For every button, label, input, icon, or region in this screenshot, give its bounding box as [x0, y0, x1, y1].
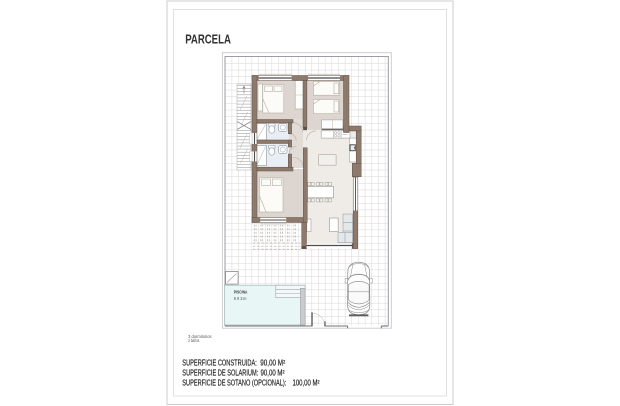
svg-text:SUPERFICIE DE SOLARIUM:: SUPERFICIE DE SOLARIUM: — [182, 369, 258, 378]
svg-text:SUPERFICIE CONSTRUIDA:: SUPERFICIE CONSTRUIDA: — [182, 358, 256, 367]
svg-text:100,00 M²: 100,00 M² — [293, 379, 320, 388]
svg-text:90,00 M²: 90,00 M² — [261, 369, 285, 378]
svg-text:PARCELA: PARCELA — [185, 31, 231, 46]
svg-text:90,00 M²: 90,00 M² — [260, 358, 285, 367]
svg-text:2 baños: 2 baños — [188, 338, 199, 343]
svg-text:PISCINA: PISCINA — [234, 289, 248, 295]
svg-text:SUPERFICIE DE SOTANO (OPCIONAL: SUPERFICIE DE SOTANO (OPCIONAL): — [182, 379, 286, 388]
svg-text:6 X 3 m: 6 X 3 m — [234, 296, 247, 302]
